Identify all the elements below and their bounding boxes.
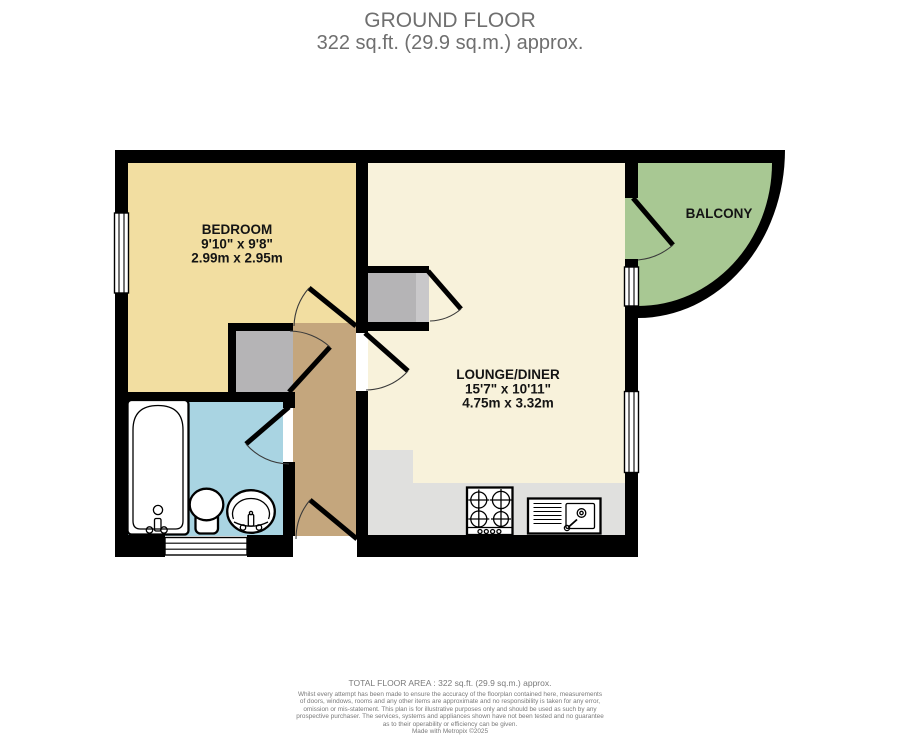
wall-right-1 bbox=[625, 150, 638, 198]
kitchen-floor bbox=[368, 450, 413, 536]
disclaimer-line: as to their operability or efficiency ca… bbox=[0, 721, 900, 728]
wall-divider-upper bbox=[356, 163, 368, 333]
disclaimer: Whilst every attempt has been made to en… bbox=[0, 691, 900, 728]
wall-bottom-2 bbox=[247, 535, 293, 557]
balcony-floor bbox=[638, 163, 772, 306]
floors bbox=[128, 163, 625, 536]
bathroom-window bbox=[165, 538, 247, 556]
bedroom-label: BEDROOM bbox=[202, 222, 273, 237]
kitchen-sink bbox=[528, 499, 601, 534]
lounge-dims-metric: 4.75m x 3.32m bbox=[462, 396, 554, 411]
balcony-door-threshold bbox=[625, 198, 638, 259]
lounge-label: LOUNGE/DINER bbox=[456, 367, 560, 382]
balcony-label: BALCONY bbox=[686, 206, 753, 221]
wall-hall-top bbox=[228, 323, 293, 331]
closet-left-floor bbox=[236, 331, 293, 392]
bedroom-floor-lower bbox=[128, 323, 228, 392]
bedroom-dims-imperial: 9'10" x 9'8" bbox=[201, 237, 273, 252]
wall-bottom-3 bbox=[357, 535, 638, 557]
wall-left-upper bbox=[115, 150, 128, 213]
credit-line: Made with Metropix ©2025 bbox=[0, 728, 900, 735]
closet-right-open-side bbox=[416, 273, 429, 322]
lounge-window bbox=[625, 392, 639, 473]
floorplan-drawing: BEDROOM 9'10" x 9'8" 2.99m x 2.95m LOUNG… bbox=[0, 0, 900, 735]
wall-right-4 bbox=[625, 472, 638, 557]
floorplan-page: GROUND FLOOR 322 sq.ft. (29.9 sq.m.) app… bbox=[0, 0, 900, 735]
toilet bbox=[190, 489, 224, 534]
total-floor-area: TOTAL FLOOR AREA : 322 sq.ft. (29.9 sq.m… bbox=[0, 678, 900, 688]
balcony-structure bbox=[625, 150, 785, 318]
bedroom-window bbox=[115, 213, 129, 293]
wall-right-3 bbox=[625, 306, 638, 392]
wall-bottom-1 bbox=[115, 535, 165, 557]
disclaimer-line: of doors, windows, rooms and any other i… bbox=[0, 698, 900, 705]
wall-bathroom-right-upper bbox=[283, 392, 295, 408]
balcony-window bbox=[625, 267, 639, 306]
wall-left-lower bbox=[115, 293, 128, 557]
disclaimer-line: prospective purchaser. The services, sys… bbox=[0, 713, 900, 720]
basin bbox=[227, 490, 275, 533]
wall-top bbox=[115, 150, 638, 163]
disclaimer-line: omission or mis-statement. This plan is … bbox=[0, 706, 900, 713]
wall-bathroom-right-lower bbox=[283, 462, 295, 536]
hob bbox=[467, 488, 513, 536]
wall-divider-lower bbox=[356, 391, 368, 536]
wall-closet-right-bottom bbox=[356, 322, 429, 331]
wall-closet-left-side bbox=[228, 323, 236, 392]
bathtub bbox=[128, 400, 189, 535]
bedroom-dims-metric: 2.99m x 2.95m bbox=[191, 251, 283, 266]
disclaimer-line: Whilst every attempt has been made to en… bbox=[0, 691, 900, 698]
lounge-dims-imperial: 15'7" x 10'11" bbox=[465, 382, 551, 397]
wall-closet-right-top bbox=[368, 266, 429, 273]
